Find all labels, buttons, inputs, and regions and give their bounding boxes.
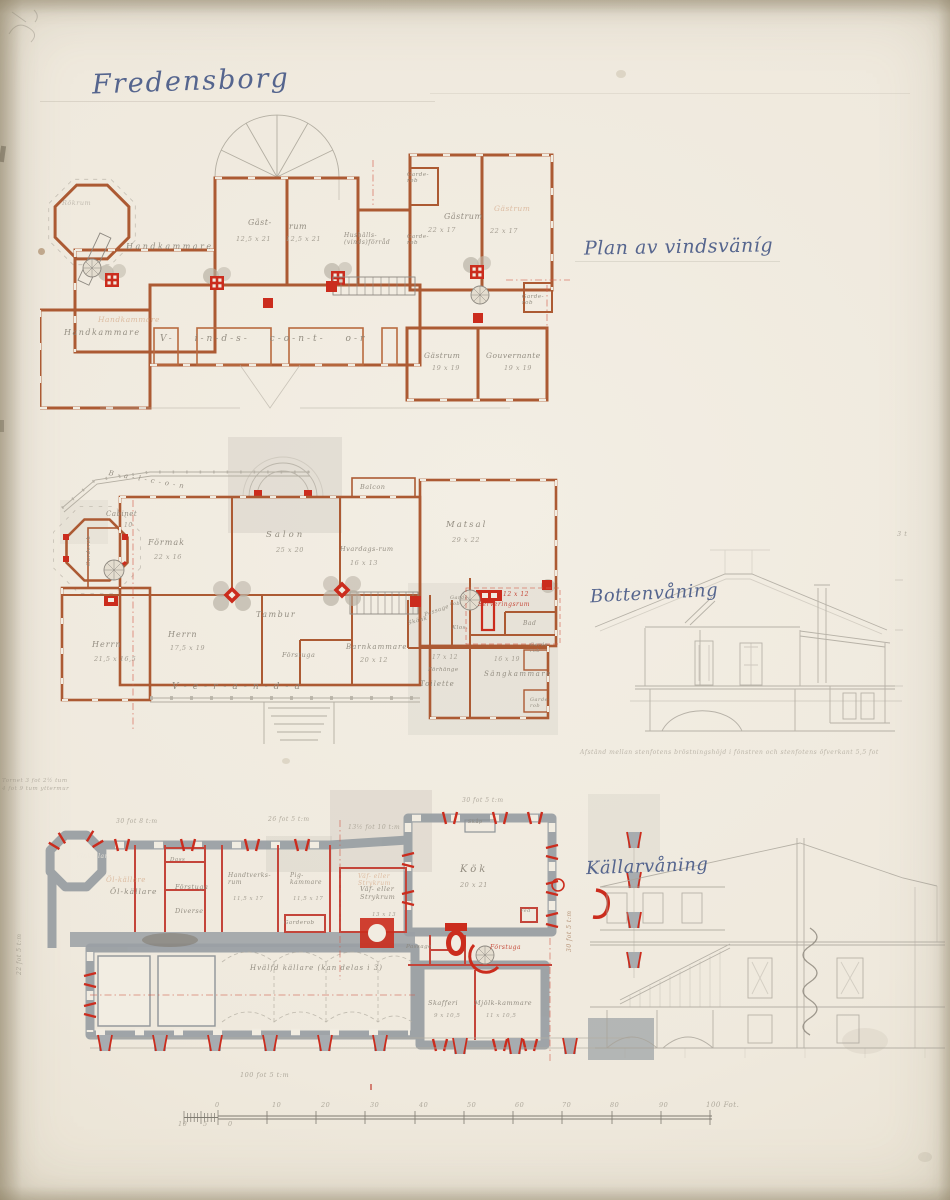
- cellar-arch: [662, 711, 742, 731]
- room-dims: 22 x 17: [428, 227, 456, 235]
- tower-gallery: [49, 179, 136, 264]
- room-label-gastrum: Gäst-: [248, 218, 272, 227]
- dimension-label: 22 fot 5 t:m: [16, 933, 23, 975]
- basement-plan-drawing: [30, 790, 670, 1080]
- scan-bottom-edge: [0, 1186, 950, 1200]
- room-label-pigkammare: Pig- kammare: [290, 872, 322, 886]
- scale-tick-label: 30: [370, 1102, 379, 1110]
- balcony-gallery: [62, 457, 323, 512]
- room-label-hushallsforrad: Hushålls- (vinds)förråd: [344, 232, 390, 246]
- grand-stair: [620, 944, 730, 1004]
- spiral-stair-section: [803, 928, 817, 1035]
- room-dims: 16 x 13: [350, 560, 378, 568]
- sheet-title: Fredensborg: [92, 63, 291, 102]
- scan-top-edge: [0, 0, 950, 14]
- room-label-gastrum: rum: [289, 222, 307, 231]
- scale-bar: [175, 1108, 755, 1130]
- room-label-garderob: Garde- rob: [530, 643, 550, 655]
- room-label-salon: Salon: [266, 530, 305, 540]
- room-label-balcon: Balcon: [360, 484, 385, 492]
- stain: [282, 758, 290, 764]
- dimension-label: 100 fot 5 t:m: [240, 1072, 289, 1080]
- roof-pencil-note: 3 t: [897, 531, 907, 539]
- room-label-forstuga: Förstuga: [282, 652, 315, 660]
- centerlines: [133, 500, 560, 732]
- room-label-gastrum-ghost: Gästrum: [494, 205, 530, 214]
- dimension-label: 30 fot 5 t:m: [462, 797, 504, 804]
- room-label-garderob: Garderob: [86, 535, 92, 566]
- room-label-garderob: Garde- rob: [450, 596, 470, 608]
- room-dims: 10: [124, 522, 133, 529]
- room-label-skafferi: Skafferi: [428, 1000, 458, 1008]
- room-dims: 9 x 10,5: [434, 1013, 460, 1019]
- room-dims: 17,5 x 19: [170, 645, 205, 653]
- room-label-handkammare: Handkammare: [64, 328, 141, 337]
- room-label-forstuga: Förstuga: [490, 944, 521, 951]
- scale-tick-label: 90: [659, 1102, 668, 1110]
- room-label-ved: Ved: [520, 909, 531, 915]
- room-dims: 12 x 12: [503, 591, 529, 598]
- room-dims: 13 x 13: [372, 912, 396, 918]
- smudge: [918, 1152, 932, 1162]
- room-label-veranda: V-e-r-a-n-d-a: [172, 682, 306, 693]
- attic-plan-caption: Plan av vindsväníg: [584, 234, 773, 260]
- attic-floor-plan-drawing: [40, 105, 570, 420]
- scale-tick-label: 80: [610, 1102, 619, 1110]
- room-dims: 20 x 12: [360, 657, 388, 665]
- room-dims: 19 x 19: [504, 365, 532, 373]
- cellar-arches: [607, 1010, 713, 1048]
- room-dims: 16 x 19: [494, 656, 520, 663]
- room-dims: 22 x 16: [154, 554, 182, 562]
- room-label-gastrum: Gästrum: [444, 212, 483, 221]
- privy-fixture: [445, 923, 467, 956]
- room-label-hvardagsrum: Hvardags-rum: [340, 546, 394, 554]
- room-label-garderob: Garde- rob: [407, 234, 429, 247]
- cross-section-upper: [590, 490, 930, 760]
- scale-unit-label: 100 Fot.: [706, 1101, 739, 1109]
- room-label-mjolkkammare: Mjölk-kammare: [474, 1000, 532, 1008]
- scale-tick-label: 0: [215, 1102, 220, 1110]
- room-label-garderob: Garde- rob: [522, 294, 544, 307]
- room-label-vafrum: Väf- eller Strykrum: [360, 886, 395, 901]
- room-dims: 19 x 19: [432, 365, 460, 373]
- room-label-toilette: Toilette: [420, 680, 455, 688]
- room-label-serveringsrum: Serveringsrum: [478, 601, 530, 608]
- vault-arcs: [222, 952, 412, 1022]
- margin-pencil-note: Tornet 3 fot 2½ tum 4 fot 9 tum yttermur: [2, 777, 82, 794]
- room-dims: 11,5 x 17: [233, 896, 263, 902]
- scale-tick-label: 10: [178, 1121, 187, 1129]
- scan-edge-mark: [0, 420, 4, 432]
- spiral-stair-icon: [471, 286, 489, 304]
- scan-edge-mark: [0, 146, 6, 163]
- room-label-vinkallare: Vinkällare: [76, 853, 112, 860]
- room-label-cabinet: Cabinet: [106, 510, 137, 518]
- room-dims: 20 x 21: [460, 882, 488, 890]
- room-dims: 17 x 12: [432, 654, 458, 661]
- scale-tick-label: 40: [419, 1102, 428, 1110]
- room-dims: 29 x 22: [452, 537, 480, 545]
- room-dims: 22 x 17: [490, 228, 518, 236]
- room-label-forhange: Förhänge: [428, 667, 459, 673]
- pencil-guide-line: [575, 261, 780, 262]
- room-dims: 11 x 10,5: [486, 1013, 516, 1019]
- cellar-room: [98, 956, 150, 1026]
- room-dims: 21,5 x 16,5: [94, 656, 136, 664]
- room-label-vindscontor: V- i-n-d-s- c-o-n-t- o-r: [160, 334, 367, 345]
- room-dims: 12,5 x 21: [286, 236, 321, 244]
- scale-tick-label: 60: [515, 1102, 524, 1110]
- smudge: [142, 933, 198, 947]
- room-label-sangkammare: Sängkammare: [484, 670, 552, 678]
- room-label-klosett: Klos.: [452, 625, 468, 631]
- dimension-label: 30 fot 8 t:m: [116, 818, 158, 825]
- stain: [616, 70, 626, 78]
- room-label-barnkammare: Barnkammare: [346, 643, 408, 651]
- room-label-herrn: Herrn: [92, 640, 122, 649]
- spiral-stair-icon: [83, 259, 101, 277]
- scale-tick-label: 20: [321, 1102, 330, 1110]
- dimension-label: 30 fot 5 t:m: [566, 910, 573, 952]
- scale-tick-label: 10: [272, 1102, 281, 1110]
- room-label-formak: Förmak: [148, 538, 185, 547]
- room-label-passage: Passage: [406, 944, 432, 950]
- room-label-forstuga: Förstuga: [175, 884, 208, 892]
- room-label-gastrum: Gästrum: [424, 352, 460, 361]
- room-label-dass: Dass: [170, 857, 185, 863]
- room-label-hvalfd-kallare: Hvälfd källare (kan delas i 3): [250, 964, 383, 972]
- ground-floor-plan-drawing: [30, 450, 590, 750]
- room-label-rokrum: Rökrum: [62, 200, 91, 208]
- section-pencil-note: Afstånd mellan stenfotens bröstningshöjd…: [580, 749, 940, 756]
- room-label-skap: Skåp: [468, 820, 483, 826]
- scale-tick-label: 5: [203, 1121, 208, 1129]
- room-label-handkammare: Handkammare: [126, 242, 214, 251]
- room-dims: 25 x 20: [276, 547, 304, 555]
- room-label-matsal: Matsal: [446, 520, 487, 530]
- room-label-olkallare-ghost: Öl-källare: [106, 876, 146, 884]
- room-label-kok: Kök: [460, 864, 488, 876]
- room-dims: 11,5 x 17: [293, 896, 323, 902]
- scale-tick-label: 70: [562, 1102, 571, 1110]
- room-label-garderob: Garderob: [284, 920, 315, 926]
- basement-plan-caption: Källarvåning: [586, 854, 709, 879]
- room-label-tambur: Tambur: [256, 610, 296, 619]
- room-label-garderob: Garde- rob: [407, 172, 429, 185]
- room-label-handtverksrum: Handtverks- rum: [228, 872, 271, 886]
- room-label-handkammare-ghost: Handkammare: [98, 316, 160, 325]
- stove-chimney-cluster: [323, 576, 361, 606]
- veranda: [150, 698, 420, 744]
- spiral-stair-icon: [104, 560, 124, 580]
- room-label-bad: Bad: [523, 620, 536, 627]
- oven-foundation: [360, 918, 394, 948]
- scanned-drawing-sheet: Fredensborg Plan av vindsväníg Bottenvån…: [0, 0, 950, 1200]
- pencil-guide-line: [430, 93, 910, 94]
- room-label-diverse: Diverse: [175, 908, 204, 916]
- fan-window: [215, 115, 339, 200]
- room-label-gouvernante: Gouvernante: [486, 352, 541, 361]
- scan-left-edge: [0, 0, 22, 1200]
- scale-tick-label: 50: [467, 1102, 476, 1110]
- room-label-garderob: Garde- rob: [530, 698, 550, 710]
- corner-pencil-scribble: [4, 4, 64, 54]
- room-label-herrn: Herrn: [168, 630, 198, 639]
- chimney-mast: [797, 838, 804, 1048]
- pencil-guide-line: [40, 101, 435, 102]
- register-mark: [370, 1084, 372, 1090]
- room-dims: 12,5 x 21: [236, 236, 271, 244]
- cellar-room: [158, 956, 215, 1026]
- dimension-label: 26 fot 5 t:m: [268, 816, 310, 823]
- dimension-label: 13½ fot 10 t:m: [348, 824, 400, 831]
- scale-tick-label: 0: [228, 1121, 233, 1129]
- room-label-olkallare: Öl-källare: [110, 888, 157, 897]
